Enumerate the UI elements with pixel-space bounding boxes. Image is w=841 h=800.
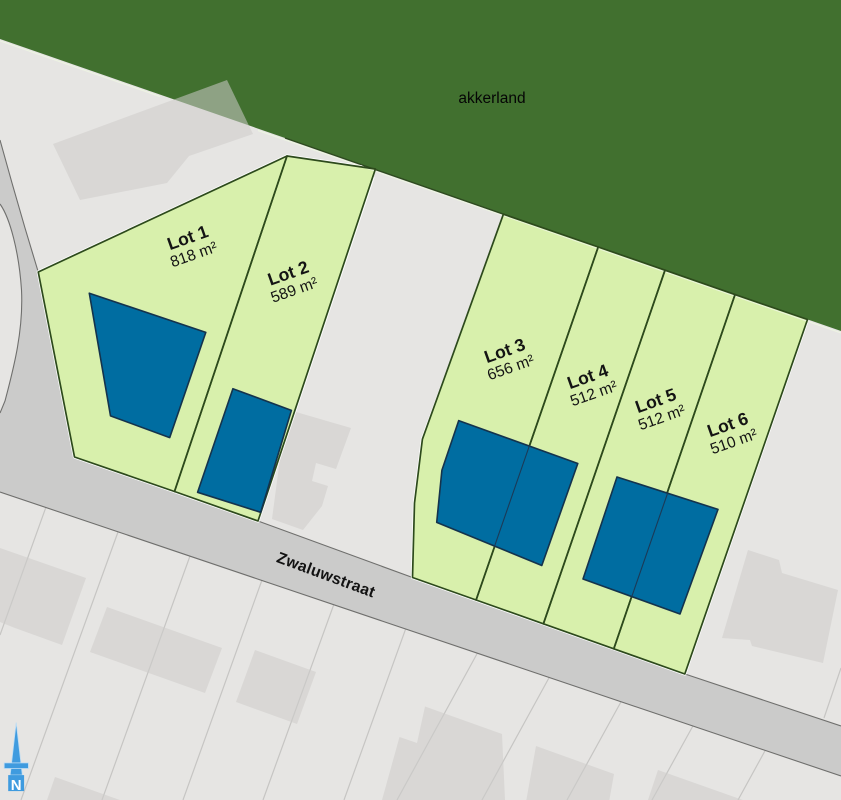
svg-text:N: N	[11, 777, 22, 794]
svg-text:akkerland: akkerland	[458, 90, 525, 107]
